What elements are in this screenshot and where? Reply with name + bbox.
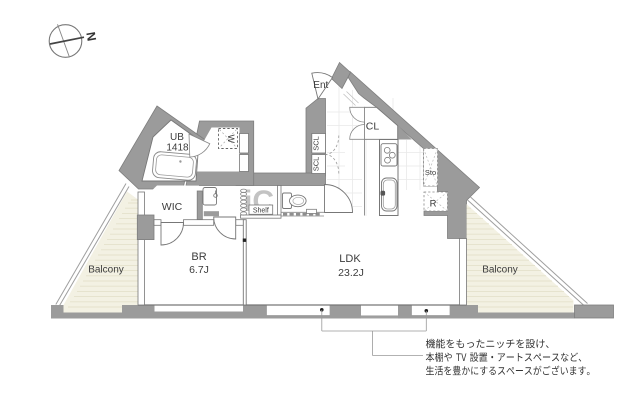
svg-text:SCL: SCL	[312, 136, 321, 151]
svg-text:BR: BR	[191, 251, 206, 263]
svg-text:UB: UB	[170, 132, 184, 143]
svg-text:Balcony: Balcony	[482, 265, 518, 276]
svg-text:Sto: Sto	[425, 168, 436, 177]
svg-text:23.2J: 23.2J	[338, 267, 364, 279]
svg-text:1418: 1418	[166, 143, 189, 154]
svg-text:R: R	[430, 199, 437, 210]
svg-text:Shelf: Shelf	[253, 208, 269, 215]
svg-text:LDK: LDK	[339, 253, 361, 265]
svg-text:6.7J: 6.7J	[189, 264, 209, 276]
svg-text:Ent: Ent	[313, 80, 328, 91]
svg-text:SCL: SCL	[312, 157, 321, 172]
svg-text:WIC: WIC	[162, 201, 183, 213]
svg-text:CL: CL	[366, 121, 380, 133]
svg-text:Balcony: Balcony	[88, 265, 124, 276]
svg-text:W: W	[226, 135, 236, 144]
